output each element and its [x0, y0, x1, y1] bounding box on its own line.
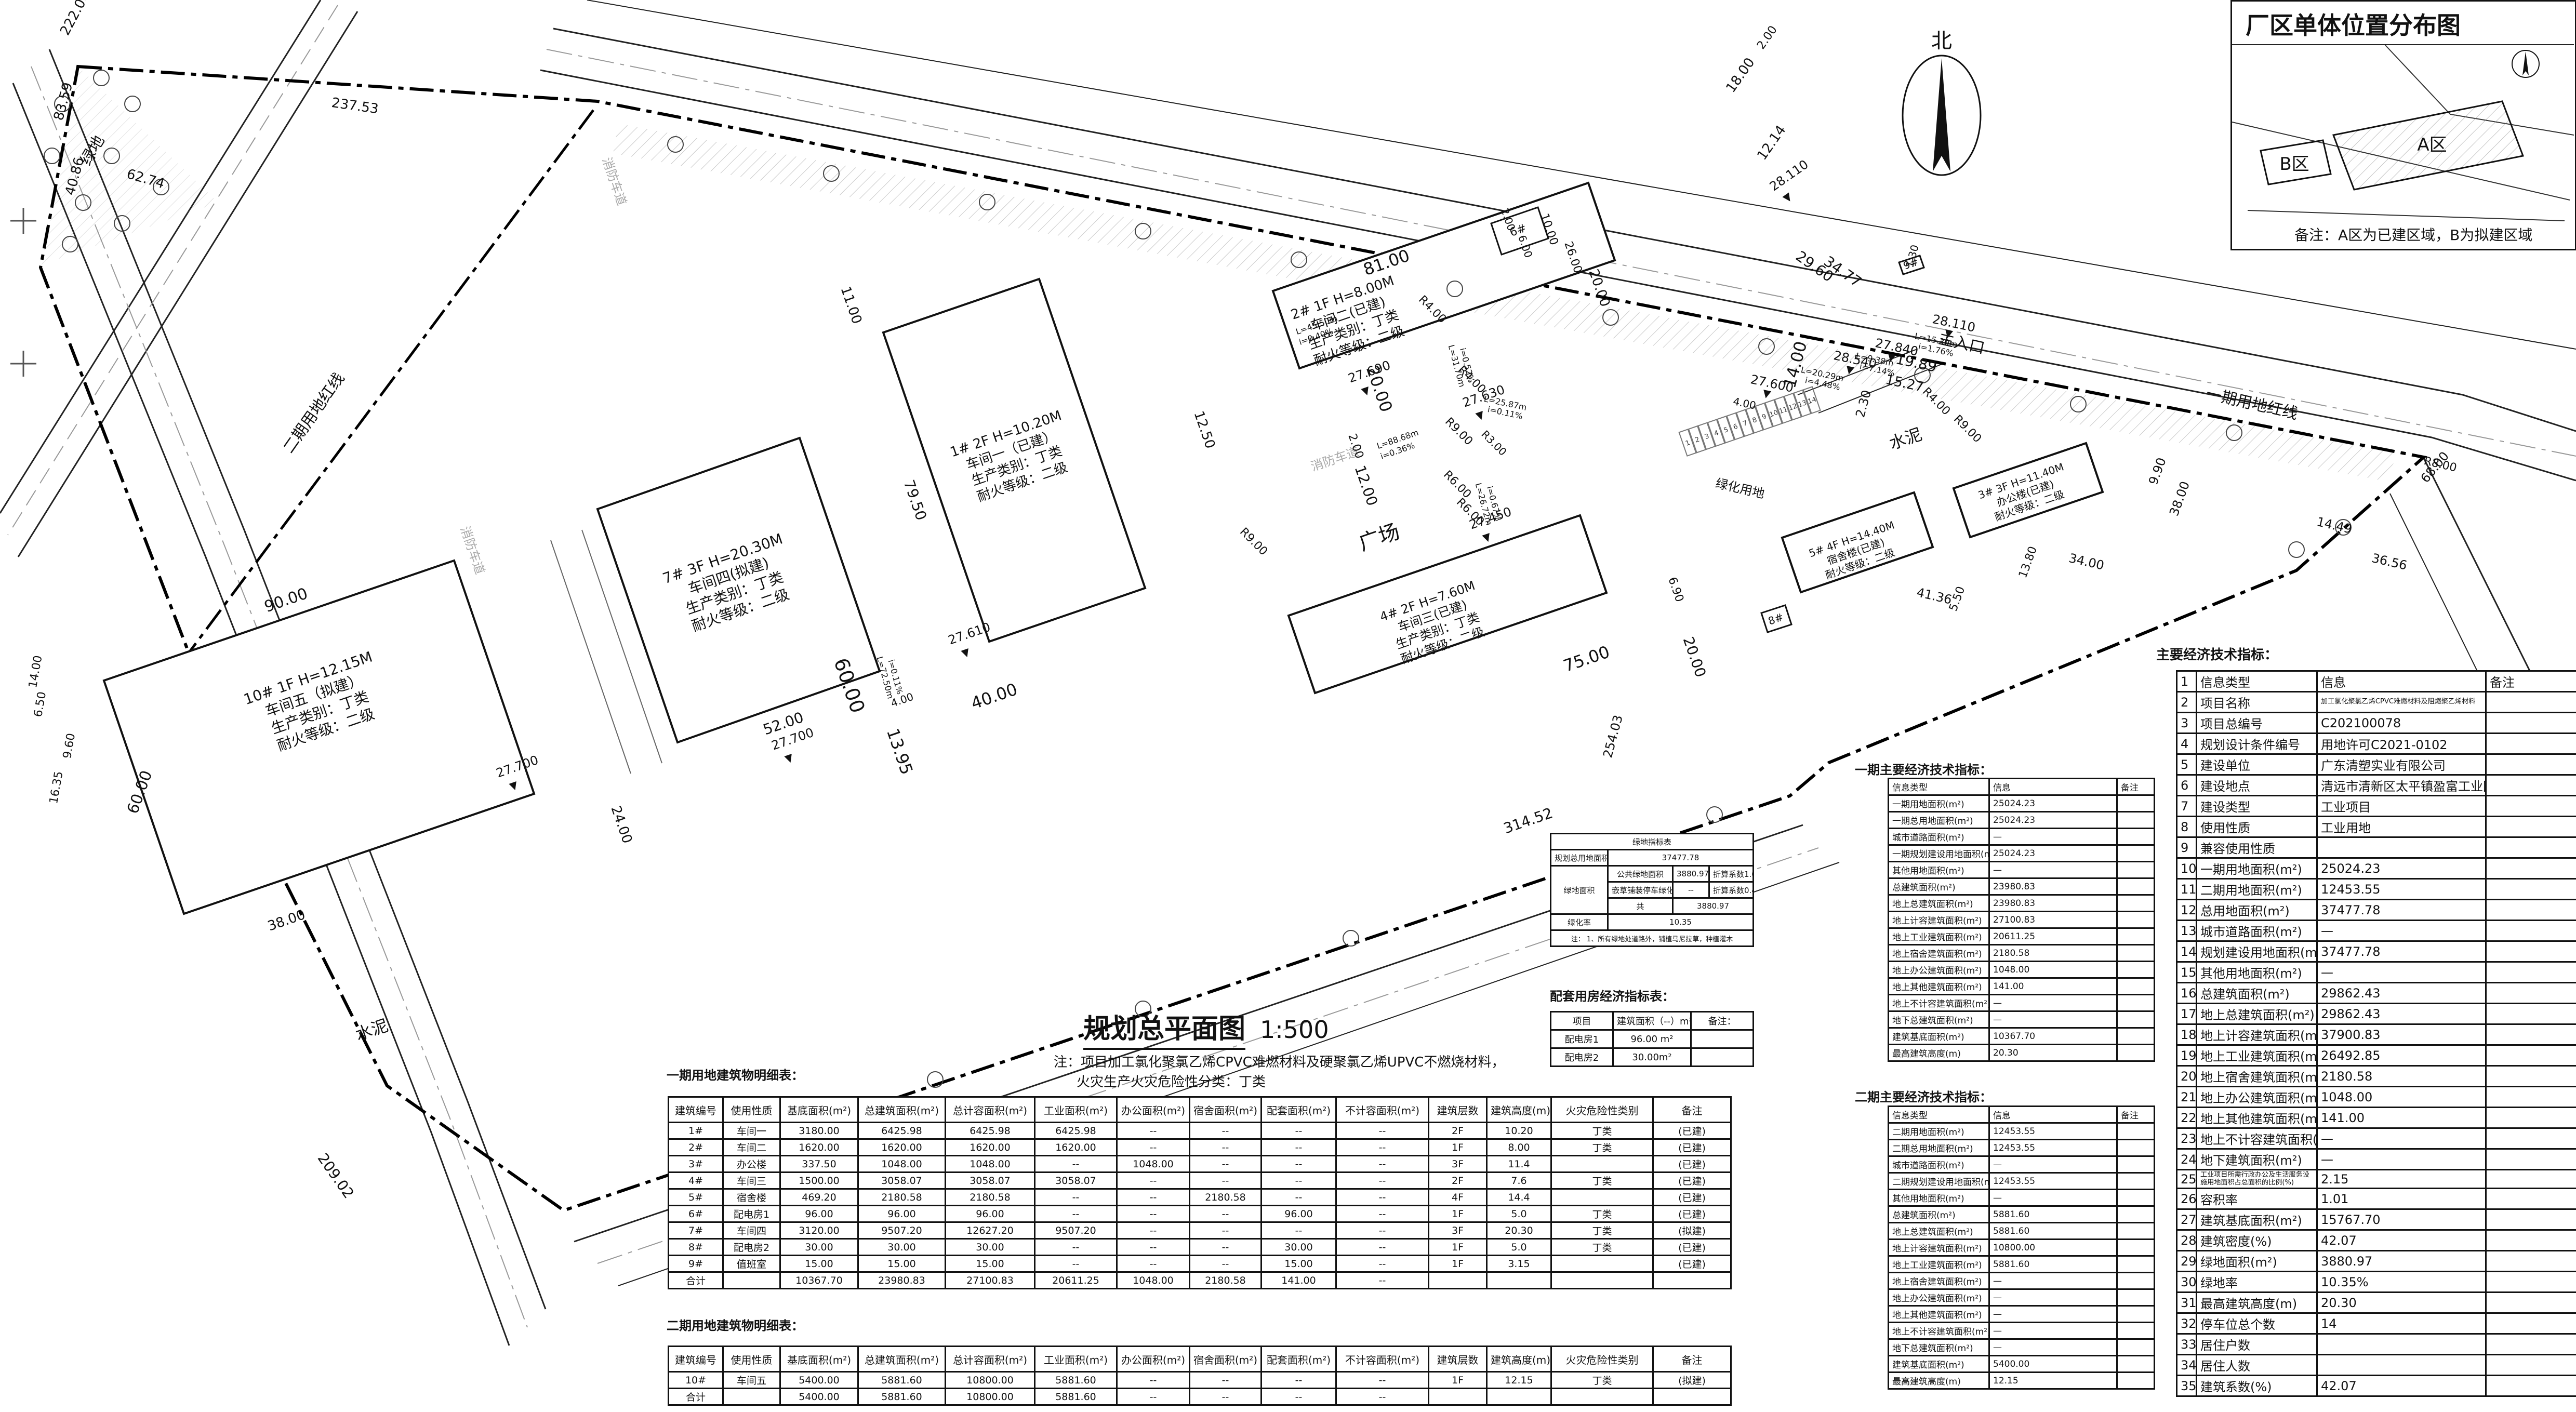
table-cell: [2317, 1355, 2486, 1376]
main-econ-table: 1信息类型信息备注2项目名称加工氯化聚氯乙烯CPVC难燃材料及阻燃聚乙烯材料3项…: [2176, 670, 2576, 1397]
inset-compass-icon: [2512, 50, 2539, 77]
table-cell: 12.15: [1487, 1372, 1551, 1389]
table-cell: 141.00: [2317, 1108, 2486, 1128]
table-cell: [2117, 795, 2155, 812]
table-cell: [2117, 812, 2155, 829]
table-cell: 3058.07: [946, 1173, 1035, 1189]
table-cell: 6425.98: [858, 1123, 946, 1139]
table-cell: 15.00: [946, 1256, 1035, 1272]
table-cell: 其他用地面积(m²): [1889, 862, 1989, 878]
table-cell: [2486, 879, 2576, 900]
table-cell: 9507.20: [1035, 1222, 1117, 1239]
column-header: 备注: [2117, 1107, 2155, 1123]
column-header: 建筑层数: [1429, 1097, 1487, 1123]
table-cell: [2486, 1376, 2576, 1396]
table-cell: --: [1262, 1123, 1336, 1139]
column-header: 总计容面积(m²): [946, 1097, 1035, 1123]
parking-number: 1: [1684, 439, 1691, 448]
table-cell: 丁类: [1551, 1139, 1653, 1156]
table-cell: [2486, 1355, 2576, 1376]
table-cell: 地下总建筑面积(m²): [1889, 1011, 1989, 1028]
table-cell: 二期规划建设用地面积(m²): [1889, 1173, 1989, 1190]
tree-icon: [2289, 542, 2304, 557]
column-header: 建筑编号: [669, 1097, 723, 1123]
green-sub1-value: 3880.97: [1673, 866, 1709, 882]
table-cell: C202100078: [2317, 713, 2486, 734]
column-header: 备注: [1653, 1097, 1731, 1123]
table-cell: 地下建筑面积(m²): [2197, 1149, 2317, 1170]
table-cell: 7.6: [1487, 1173, 1551, 1189]
table-cell: 5: [2177, 754, 2197, 775]
table-cell: [1551, 1189, 1653, 1206]
table-cell: 1.01: [2317, 1189, 2486, 1209]
table-cell: [1653, 1272, 1731, 1289]
table-cell: 20.30: [1487, 1222, 1551, 1239]
table-cell: 8: [2177, 817, 2197, 837]
column-header: 信息: [1989, 779, 2117, 795]
inset-area-b-label: B区: [2279, 154, 2309, 175]
table-cell: [723, 1272, 780, 1289]
table-cell: 一期总用地面积(m²): [1889, 812, 1989, 829]
table-cell: 14: [2177, 941, 2197, 962]
table-cell: --: [1190, 1156, 1262, 1173]
table-cell: 4F: [1429, 1189, 1487, 1206]
table-cell: —: [2317, 962, 2486, 983]
table-cell: (已建): [1653, 1256, 1731, 1272]
table-cell: 5881.60: [1035, 1372, 1117, 1389]
table-cell: 27100.83: [1989, 912, 2117, 928]
table-cell: 丁类: [1551, 1123, 1653, 1139]
column-header: 总计容面积(m²): [946, 1347, 1035, 1372]
table-cell: 14.4: [1487, 1189, 1551, 1206]
table-cell: 1048.00: [858, 1156, 946, 1173]
north-compass-icon: 北: [1903, 29, 1981, 175]
green-rate-label: 绿化率: [1551, 914, 1608, 930]
phase1-econ-title: 一期主要经济技术指标：: [1855, 760, 1992, 778]
table-cell: [2486, 692, 2576, 713]
table-cell: 469.20: [780, 1189, 858, 1206]
parking-number: 8: [1751, 416, 1758, 425]
table-cell: [2117, 912, 2155, 928]
table-cell: 其他用地面积(m²): [1889, 1190, 1989, 1206]
column-header: 建筑编号: [669, 1347, 723, 1372]
table-cell: 29: [2177, 1251, 2197, 1272]
table-cell: --: [1035, 1189, 1117, 1206]
table-cell: 23980.83: [858, 1272, 946, 1289]
column-header: 备注：: [1691, 1012, 1754, 1030]
table-cell: 地上办公建筑面积(m²): [2197, 1087, 2317, 1108]
table-cell: 建筑密度(%): [2197, 1230, 2317, 1251]
table-cell: 1#: [669, 1123, 723, 1139]
green-sub1-factor: 折算系数1.0: [1709, 866, 1754, 882]
table-cell: --: [1336, 1156, 1429, 1173]
table-cell: [2117, 995, 2155, 1011]
table-cell: 42.07: [2317, 1230, 2486, 1251]
table-cell: [2486, 1170, 2576, 1189]
table-cell: 地上计容建筑面积(m²): [1889, 912, 1989, 928]
table-cell: --: [1190, 1222, 1262, 1239]
table-cell: [2486, 962, 2576, 983]
green-sub2-factor: 折算系数0.4: [1709, 882, 1754, 898]
column-header: 信息类型: [1889, 1107, 1989, 1123]
table-cell: 32: [2177, 1313, 2197, 1334]
table-cell: 5881.60: [1989, 1256, 2117, 1273]
table-cell: [2117, 1256, 2155, 1273]
table-cell: 地上总建筑面积(m²): [2197, 1004, 2317, 1024]
table-cell: 33: [2177, 1334, 2197, 1355]
table-cell: 1048.00: [1989, 962, 2117, 978]
table-cell: [2486, 713, 2576, 734]
table-cell: 最高建筑高度(m): [2197, 1293, 2317, 1313]
table-cell: 规划设计条件编号: [2197, 734, 2317, 754]
table-cell: [2117, 1123, 2155, 1140]
table-cell: --: [1262, 1389, 1336, 1405]
table-cell: 37900.83: [2317, 1024, 2486, 1045]
table-cell: [2317, 1334, 2486, 1355]
column-header: 备注: [1653, 1347, 1731, 1372]
table-cell: 其他用地面积(m²): [2197, 962, 2317, 983]
table-cell: [2486, 1313, 2576, 1334]
table-cell: 6425.98: [1035, 1123, 1117, 1139]
table-cell: [2117, 895, 2155, 912]
table-cell: [2486, 1128, 2576, 1149]
table-cell: [2486, 817, 2576, 837]
inset-note: 备注：A区为已建区域，B为拟建区域: [2294, 224, 2532, 245]
table-cell: 1620.00: [780, 1139, 858, 1156]
table-cell: 地上工业建筑面积(m²): [2197, 1045, 2317, 1066]
column-header: 配套面积(m²): [1262, 1347, 1336, 1372]
table-cell: 清远市清新区太平镇盈富工业园: [2317, 775, 2486, 796]
table-cell: [1653, 1389, 1731, 1405]
table-cell: 广东清塑实业有限公司: [2317, 754, 2486, 775]
table-cell: 地上不计容建筑面积(m²): [2197, 1128, 2317, 1149]
table-cell: 工业项目: [2317, 796, 2486, 817]
table-cell: 96.00 m²: [1613, 1030, 1691, 1048]
table-cell: 7: [2177, 796, 2197, 817]
table-cell: --: [1336, 1139, 1429, 1156]
table-cell: 31: [2177, 1293, 2197, 1313]
table-cell: 地上不计容建筑面积(m²): [1889, 995, 1989, 1011]
table-cell: [2117, 1289, 2155, 1306]
green-table-title: 绿地指标表: [1551, 834, 1754, 850]
table-cell: [2317, 837, 2486, 858]
table-cell: [2486, 1149, 2576, 1170]
column-header: 基底面积(m²): [780, 1097, 858, 1123]
table-cell: 绿地面积(m²): [2197, 1251, 2317, 1272]
plan-note-line1: 注：项目加工氯化聚氯乙烯CPVC难燃材料及硬聚氯乙烯UPVC不燃烧材料，: [1054, 1051, 1505, 1071]
inset-map: A区 B区: [2232, 44, 2574, 224]
table-cell: 96.00: [946, 1206, 1035, 1222]
table-cell: 5400.00: [780, 1372, 858, 1389]
table-cell: 1500.00: [780, 1173, 858, 1189]
table-cell: [2117, 945, 2155, 962]
table-cell: 用地许可C2021-0102: [2317, 734, 2486, 754]
table-cell: --: [1190, 1206, 1262, 1222]
table-cell: 5881.60: [1989, 1206, 2117, 1223]
table-cell: 9507.20: [858, 1222, 946, 1239]
table-cell: 建设单位: [2197, 754, 2317, 775]
table-cell: 141.00: [1989, 978, 2117, 995]
table-cell: --: [1262, 1189, 1336, 1206]
table-cell: [2117, 1190, 2155, 1206]
phase2-econ-table: 信息类型信息备注二期用地面积(m²)12453.55二期总用地面积(m²)124…: [1888, 1105, 2155, 1390]
green-sub2-label: 嵌草铺装停车绿化: [1608, 882, 1673, 898]
support-table: 项目建筑面积（--）m²备注：配电房196.00 m²配电房230.00m²: [1550, 1011, 1754, 1067]
table-cell: --: [1190, 1372, 1262, 1389]
column-header: 不计容面积(m²): [1336, 1097, 1429, 1123]
table-cell: 3120.00: [780, 1222, 858, 1239]
tree-icon: [125, 96, 140, 112]
parking-number: 4: [1713, 429, 1720, 438]
table-cell: 丁类: [1551, 1239, 1653, 1256]
table-cell: [2486, 1251, 2576, 1272]
green-total-value: 3880.97: [1673, 898, 1754, 914]
table-cell: 3.15: [1487, 1256, 1551, 1272]
column-header: 信息: [1989, 1107, 2117, 1123]
green-area-label: 规划总用地面积: [1551, 850, 1608, 866]
table-cell: 29862.43: [2317, 983, 2486, 1004]
sheet-title: 规划总平面图1:500: [1083, 1007, 1329, 1046]
table-cell: 工业项目所需行政办公及生活服务设施用地面积占总面积的比例(%): [2197, 1170, 2317, 1189]
table-cell: —: [2317, 921, 2486, 941]
table-cell: [2117, 1323, 2155, 1339]
table-cell: [2117, 1306, 2155, 1323]
table-cell: --: [1117, 1189, 1190, 1206]
table-cell: 2F: [1429, 1123, 1487, 1139]
table-cell: 配电房2: [723, 1239, 780, 1256]
table-cell: 地上其他建筑面积(m²): [1889, 1306, 1989, 1323]
table-cell: --: [1117, 1123, 1190, 1139]
table-cell: 配电房2: [1551, 1048, 1613, 1067]
table-cell: --: [1262, 1173, 1336, 1189]
table-cell: 城市道路面积(m²): [1889, 1156, 1989, 1173]
green-space-table: 绿地指标表 规划总用地面积 37477.78 绿地面积 公共绿地面积 3880.…: [1550, 833, 1754, 947]
table-cell: --: [1035, 1206, 1117, 1222]
table-cell: 加工氯化聚氯乙烯CPVC难燃材料及阻燃聚乙烯材料: [2317, 692, 2486, 713]
table-cell: 地上其他建筑面积(m²): [2197, 1108, 2317, 1128]
table-cell: 25024.23: [1989, 812, 2117, 829]
table-cell: 23980.83: [1989, 878, 2117, 895]
table-cell: --: [1336, 1256, 1429, 1272]
table-cell: [2117, 1045, 2155, 1061]
table-cell: —: [1989, 995, 2117, 1011]
parking-row: 1234567891011121314: [1679, 387, 1821, 456]
green-buffer-hatch: [613, 124, 2400, 481]
table-cell: 1620.00: [946, 1139, 1035, 1156]
parking-number: 9: [1761, 413, 1768, 422]
table-cell: 25: [2177, 1170, 2197, 1189]
table-cell: 37477.78: [2317, 941, 2486, 962]
table-cell: 5.0: [1487, 1239, 1551, 1256]
table-cell: [2117, 1240, 2155, 1256]
table-cell: [1551, 1272, 1653, 1289]
table-cell: 2180.58: [1190, 1189, 1262, 1206]
table-cell: 26492.85: [2317, 1045, 2486, 1066]
table-cell: 车间五: [723, 1372, 780, 1389]
table-cell: --: [1035, 1239, 1117, 1256]
table-cell: (拟建): [1653, 1372, 1731, 1389]
table-cell: 2180.58: [1989, 945, 2117, 962]
table-cell: 丁类: [1551, 1173, 1653, 1189]
table-cell: 值班室: [723, 1256, 780, 1272]
table-cell: 18: [2177, 1024, 2197, 1045]
table-cell: 地上其他建筑面积(m²): [1889, 978, 1989, 995]
table-cell: --: [1262, 1372, 1336, 1389]
table-cell: 配电房1: [1551, 1030, 1613, 1048]
table-cell: [2486, 1334, 2576, 1355]
table-cell: 5.0: [1487, 1206, 1551, 1222]
tree-icon: [44, 148, 60, 164]
table-cell: 6425.98: [946, 1123, 1035, 1139]
table-cell: --: [1117, 1389, 1190, 1405]
table-cell: [2117, 1173, 2155, 1190]
table-cell: [2486, 1066, 2576, 1087]
table-cell: [1551, 1389, 1653, 1405]
table-cell: 3F: [1429, 1222, 1487, 1239]
table-cell: 25024.23: [1989, 795, 2117, 812]
table-cell: 20611.25: [1989, 928, 2117, 945]
table-cell: 27: [2177, 1209, 2197, 1230]
table-cell: [2486, 1045, 2576, 1066]
column-header: 不计容面积(m²): [1336, 1347, 1429, 1372]
table-cell: [2486, 900, 2576, 921]
table-cell: 车间三: [723, 1173, 780, 1189]
table-cell: 1F: [1429, 1206, 1487, 1222]
table-cell: 合计: [669, 1389, 723, 1405]
table-cell: [2117, 1223, 2155, 1240]
table-cell: [2486, 796, 2576, 817]
column-header: 工业面积(m²): [1035, 1347, 1117, 1372]
table-cell: [2117, 1140, 2155, 1156]
table-cell: --: [1117, 1139, 1190, 1156]
table-cell: 30.00: [780, 1239, 858, 1256]
table-cell: 30: [2177, 1272, 2197, 1293]
table-cell: 25024.23: [1989, 845, 2117, 862]
table-cell: 5881.60: [1989, 1223, 2117, 1240]
table-cell: (已建): [1653, 1173, 1731, 1189]
table-cell: —: [1989, 1289, 2117, 1306]
table-cell: [2486, 775, 2576, 796]
table-cell: 地上不计容建筑面积(m²): [1889, 1323, 1989, 1339]
table-cell: 20611.25: [1035, 1272, 1117, 1289]
table-cell: 地上工业建筑面积(m²): [1889, 928, 1989, 945]
table-cell: [2117, 862, 2155, 878]
table-cell: [2486, 1230, 2576, 1251]
table-cell: (已建): [1653, 1239, 1731, 1256]
green-table-note: 注： 1、所有绿地处道路外，铺植马尼拉草，种植灌木: [1551, 930, 1754, 947]
table-cell: --: [1117, 1222, 1190, 1239]
column-header: 总建筑面积(m²): [858, 1097, 946, 1123]
plan-note-line2: 火灾生产火灾危险性分类：丁类: [1077, 1071, 1266, 1090]
parking-number: 6: [1732, 422, 1739, 431]
column-header: 办公面积(m²): [1117, 1347, 1190, 1372]
table-cell: 车间四: [723, 1222, 780, 1239]
table-cell: [2117, 1373, 2155, 1389]
table-cell: [2117, 1339, 2155, 1356]
green-sub1-label: 公共绿地面积: [1608, 866, 1673, 882]
table-cell: 2: [2177, 692, 2197, 713]
table-cell: (已建): [1653, 1156, 1731, 1173]
table-cell: [2486, 983, 2576, 1004]
table-cell: --: [1117, 1206, 1190, 1222]
table-cell: --: [1336, 1272, 1429, 1289]
table-cell: [2486, 754, 2576, 775]
table-cell: 建筑系数(%): [2197, 1376, 2317, 1396]
table-cell: 6: [2177, 775, 2197, 796]
table-cell: 3F: [1429, 1156, 1487, 1173]
table-cell: [1551, 1256, 1653, 1272]
table-cell: 城市道路面积(m²): [2197, 921, 2317, 941]
table-cell: 20: [2177, 1066, 2197, 1087]
parking-number: 7: [1742, 419, 1749, 428]
table-cell: [2486, 1087, 2576, 1108]
table-cell: 居住户数: [2197, 1334, 2317, 1355]
table-cell: (已建): [1653, 1123, 1731, 1139]
table-cell: 21: [2177, 1087, 2197, 1108]
table-cell: 5400.00: [1989, 1356, 2117, 1373]
table-cell: 总建筑面积(m²): [2197, 983, 2317, 1004]
column-header: 基底面积(m²): [780, 1347, 858, 1372]
column-header: 工业面积(m²): [1035, 1097, 1117, 1123]
table-cell: --: [1336, 1372, 1429, 1389]
table-cell: [2486, 1108, 2576, 1128]
table-cell: [723, 1389, 780, 1405]
table-cell: 19: [2177, 1045, 2197, 1066]
table-cell: --: [1336, 1123, 1429, 1139]
table-cell: [2117, 978, 2155, 995]
table-cell: 16: [2177, 983, 2197, 1004]
column-header: 1: [2177, 671, 2197, 692]
table-cell: --: [1190, 1389, 1262, 1405]
green-group-label: 绿地面积: [1551, 866, 1608, 914]
table-cell: 3180.00: [780, 1123, 858, 1139]
table-cell: 最高建筑高度(m): [1889, 1045, 1989, 1061]
table-cell: —: [1989, 1156, 2117, 1173]
column-header: 建筑高度(m): [1487, 1347, 1551, 1372]
table-cell: 1620.00: [1035, 1139, 1117, 1156]
table-cell: 42.07: [2317, 1376, 2486, 1396]
table-cell: 丁类: [1551, 1372, 1653, 1389]
table-cell: 5881.60: [858, 1389, 946, 1405]
table-cell: [2117, 1356, 2155, 1373]
table-cell: 11: [2177, 879, 2197, 900]
table-cell: 96.00: [1262, 1206, 1336, 1222]
parking-number: 3: [1704, 432, 1710, 441]
table-cell: 车间二: [723, 1139, 780, 1156]
table-cell: --: [1117, 1239, 1190, 1256]
table-cell: 宿舍楼: [723, 1189, 780, 1206]
table-cell: 22: [2177, 1108, 2197, 1128]
table-cell: 地上宿舍建筑面积(m²): [1889, 945, 1989, 962]
table-cell: [2117, 878, 2155, 895]
table-cell: —: [2317, 1128, 2486, 1149]
table-cell: 3: [2177, 713, 2197, 734]
table-cell: [2486, 1189, 2576, 1209]
unit-location-inset: 厂区单体位置分布图 A区 B区 备注：A区为已建区域，B为拟建区域: [2230, 0, 2576, 250]
table-cell: --: [1190, 1139, 1262, 1156]
table-cell: 容积率: [2197, 1189, 2317, 1209]
table-cell: 30.00: [1262, 1239, 1336, 1256]
column-header: 备注: [2117, 779, 2155, 795]
table-cell: [2117, 928, 2155, 945]
table-cell: [1429, 1389, 1487, 1405]
phase2-bldg-title: 二期用地建筑物明细表：: [667, 1315, 804, 1334]
table-cell: 1F: [1429, 1256, 1487, 1272]
tree-icon: [1343, 930, 1359, 946]
table-cell: 10: [2177, 858, 2197, 879]
column-header: 宿舍面积(m²): [1190, 1097, 1262, 1123]
table-cell: 二期总用地面积(m²): [1889, 1140, 1989, 1156]
